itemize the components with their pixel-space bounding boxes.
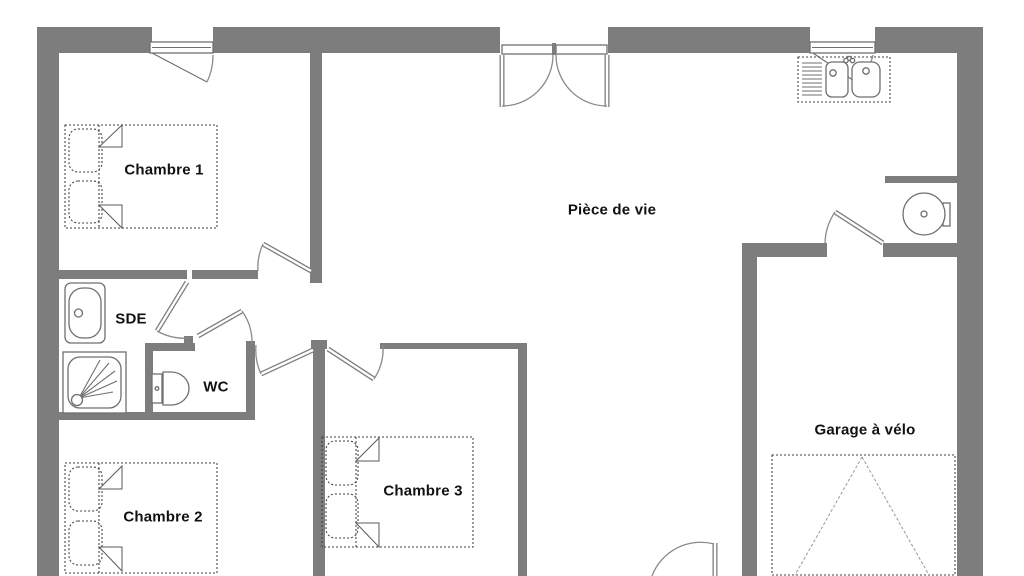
door-chambre-1-icon — [258, 244, 311, 271]
bike-parking-area-icon — [772, 455, 955, 575]
door-chambre-3-icon — [328, 345, 383, 379]
door-garage-icon — [825, 212, 883, 243]
room-label-garage: Garage à vélo — [815, 422, 916, 439]
window-chambre-1-icon — [150, 42, 213, 82]
floor-plan: Chambre 1 Pièce de vie SDE WC Chambre 2 … — [0, 0, 1024, 576]
water-heater-icon — [903, 193, 950, 235]
room-label-sde: SDE — [115, 311, 146, 328]
washbasin-icon — [65, 283, 105, 343]
door-entrance-icon — [652, 542, 715, 576]
room-label-wc: WC — [203, 379, 228, 396]
room-label-piece-de-vie: Pièce de vie — [568, 202, 656, 219]
door-sde-icon — [157, 282, 190, 338]
kitchen-sink-icon — [798, 57, 890, 103]
toilet-icon — [152, 372, 189, 405]
door-wc-icon — [198, 311, 252, 344]
floor-plan-drawing — [0, 0, 1024, 576]
shower-icon — [63, 352, 126, 413]
room-label-chambre-1: Chambre 1 — [124, 162, 203, 179]
room-label-chambre-2: Chambre 2 — [123, 509, 202, 526]
interior-walls — [59, 50, 959, 576]
room-label-chambre-3: Chambre 3 — [383, 483, 462, 500]
french-door-icon — [502, 43, 607, 107]
door-corridor-icon — [256, 345, 313, 374]
